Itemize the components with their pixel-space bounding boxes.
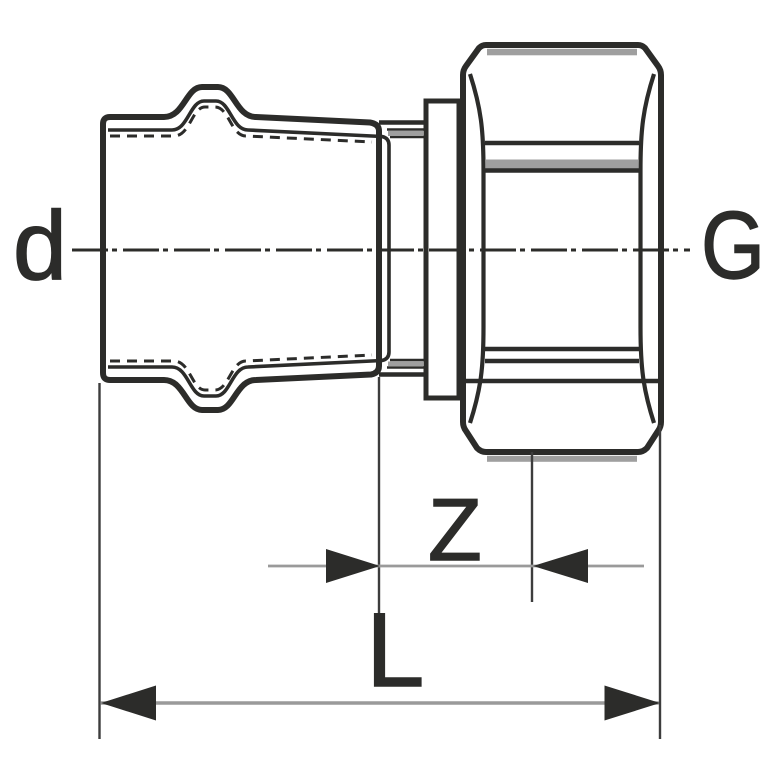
svg-text:G: G — [701, 192, 765, 299]
svg-text:d: d — [13, 191, 67, 300]
svg-text:L: L — [366, 592, 424, 709]
svg-text:Z: Z — [428, 480, 482, 579]
